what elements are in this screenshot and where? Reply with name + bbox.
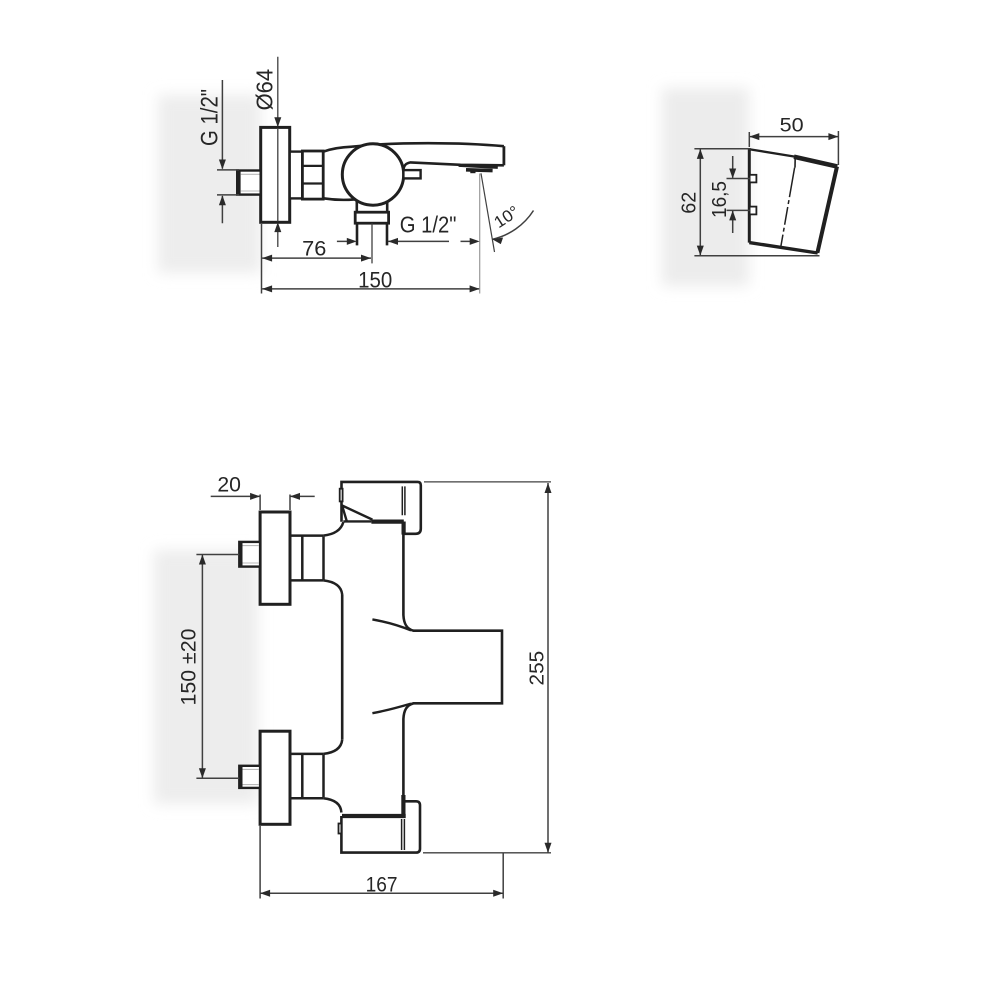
svg-text:G 1/2": G 1/2" [197,89,224,146]
svg-text:167: 167 [366,872,398,896]
svg-text:150: 150 [358,268,392,293]
svg-text:Ø64: Ø64 [252,69,278,111]
svg-text:76: 76 [302,237,326,260]
svg-text:150 ±20: 150 ±20 [177,628,201,705]
svg-text:50: 50 [780,115,804,137]
svg-text:G 1/2": G 1/2" [400,212,457,238]
svg-text:20: 20 [217,472,241,496]
svg-text:255: 255 [527,651,549,686]
svg-text:62: 62 [678,192,701,214]
svg-text:16,5: 16,5 [708,181,731,218]
